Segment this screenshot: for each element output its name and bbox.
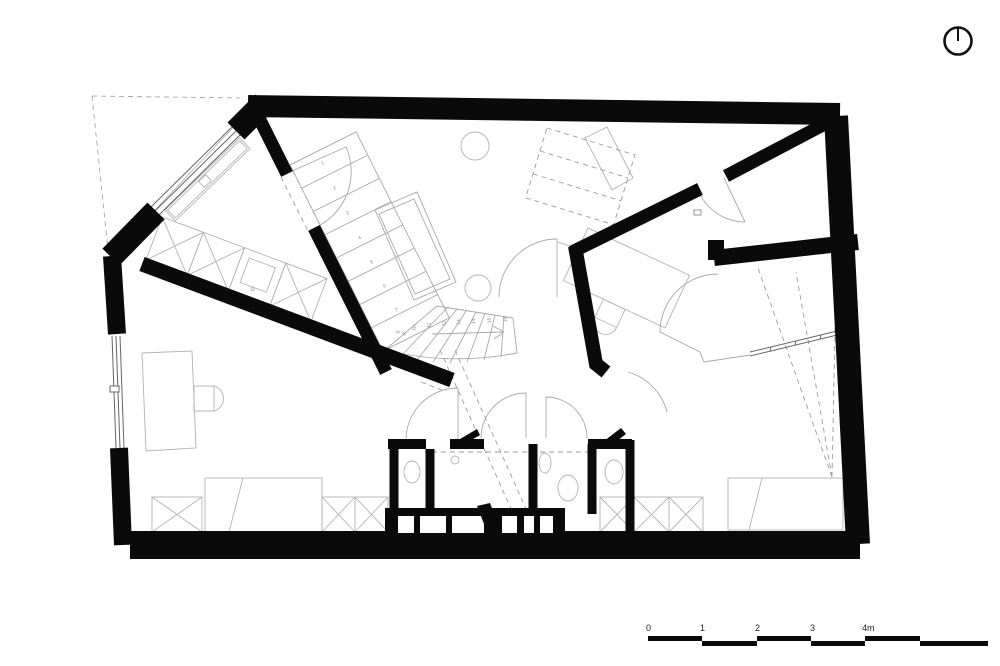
tread-number: 11 — [426, 322, 433, 328]
slope-line — [796, 272, 832, 477]
door-swing — [499, 239, 557, 297]
scale-label: 4m — [862, 623, 875, 633]
tread-number: 12 — [441, 320, 448, 326]
bed-left — [205, 478, 322, 532]
door-swing — [698, 178, 745, 222]
curved-partition — [660, 274, 750, 362]
tread-number: 1 — [320, 160, 325, 167]
door-swing — [481, 393, 526, 438]
floor-plan-drawing: 1 2 3 4 5 6 7 8 9 10 11 12 13 14 15 16 1… — [0, 0, 1000, 666]
wardrobes-bottom-right — [600, 497, 703, 532]
stair-void-inner — [379, 199, 450, 294]
tread-number: 7 — [394, 307, 399, 314]
tread-number: 14 — [471, 318, 477, 324]
tread-number: 2 — [332, 185, 337, 192]
wall-interior-c2 — [572, 189, 700, 252]
scale-bar-segments — [648, 636, 988, 646]
window-mullion — [110, 386, 119, 392]
slope-line — [758, 268, 832, 477]
door-opening-dashed — [281, 171, 320, 231]
round-element-top — [461, 132, 489, 160]
bed-right — [728, 478, 843, 530]
tread-number: 4 — [357, 235, 362, 242]
tread-number: 3 — [345, 210, 350, 217]
wall-top — [248, 106, 840, 114]
wall-interior-b1 — [258, 116, 287, 174]
scale-label: 3 — [810, 623, 815, 633]
door-swing — [628, 372, 667, 412]
walls-layer — [111, 103, 860, 547]
stair-void — [375, 192, 456, 300]
scale-label: 2 — [755, 623, 760, 633]
scale-bar: 0 1 2 3 4m — [646, 623, 988, 646]
tread-number: 10 — [411, 324, 418, 331]
tread-number: 9 — [395, 330, 402, 335]
tread-number: 15 — [487, 317, 493, 323]
door-swing — [406, 388, 458, 440]
floor-plan-page: 1 2 3 4 5 6 7 8 9 10 11 12 13 14 15 16 1… — [0, 0, 1000, 666]
furniture-layer — [142, 127, 843, 532]
wall-right — [836, 116, 858, 544]
dashed-bed-outline — [526, 128, 635, 225]
north-arrow-icon — [945, 28, 972, 55]
round-element-hall — [465, 275, 491, 301]
glazed-band — [385, 503, 565, 547]
wall-interior-d — [575, 246, 606, 372]
window-bench — [165, 138, 250, 221]
scale-label: 0 — [646, 623, 651, 633]
door-handle — [694, 210, 701, 215]
tread-number: 13 — [456, 319, 462, 325]
scale-label: 1 — [700, 623, 705, 633]
wall-interior-b2 — [314, 228, 386, 372]
wardrobes-bottom-left — [152, 497, 388, 532]
slanted-furniture — [585, 127, 633, 190]
wall-left-upper — [112, 256, 117, 334]
tread-number: 16 — [503, 316, 509, 322]
tread-number: 6 — [382, 283, 387, 290]
door-swing — [290, 147, 351, 228]
wall-left-lower — [119, 448, 123, 545]
desk-left — [142, 351, 223, 451]
wall-pier — [708, 240, 724, 260]
tread-number: 5 — [369, 259, 374, 266]
door-swing — [546, 397, 587, 438]
wall-interior-c1 — [726, 116, 840, 176]
